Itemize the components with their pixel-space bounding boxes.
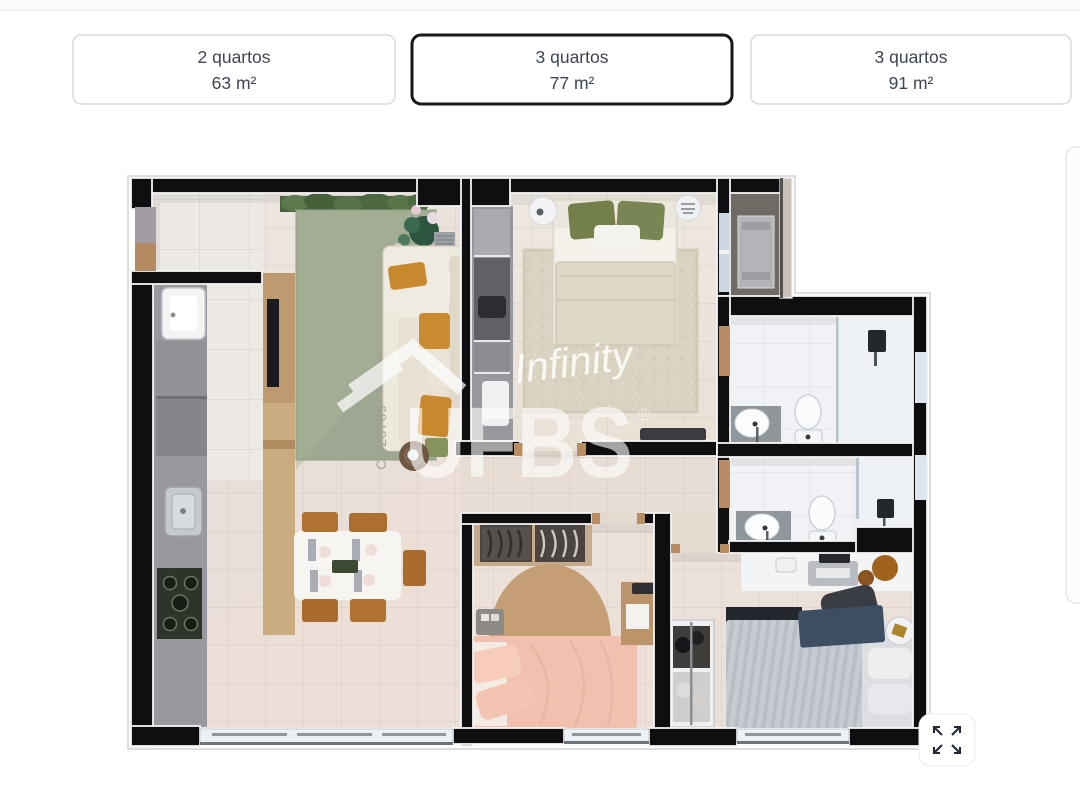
svg-text:UFBS: UFBS (405, 387, 633, 499)
svg-text:2 quartos: 2 quartos (198, 47, 271, 67)
svg-text:3 quartos: 3 quartos (875, 47, 948, 67)
svg-text:77 m²: 77 m² (550, 73, 595, 93)
svg-text:CJ 28789: CJ 28789 (374, 404, 389, 470)
svg-text:3 quartos: 3 quartos (536, 47, 609, 67)
svg-text:®: ® (638, 405, 651, 424)
svg-text:63 m²: 63 m² (212, 73, 257, 93)
svg-text:91 m²: 91 m² (889, 73, 934, 93)
